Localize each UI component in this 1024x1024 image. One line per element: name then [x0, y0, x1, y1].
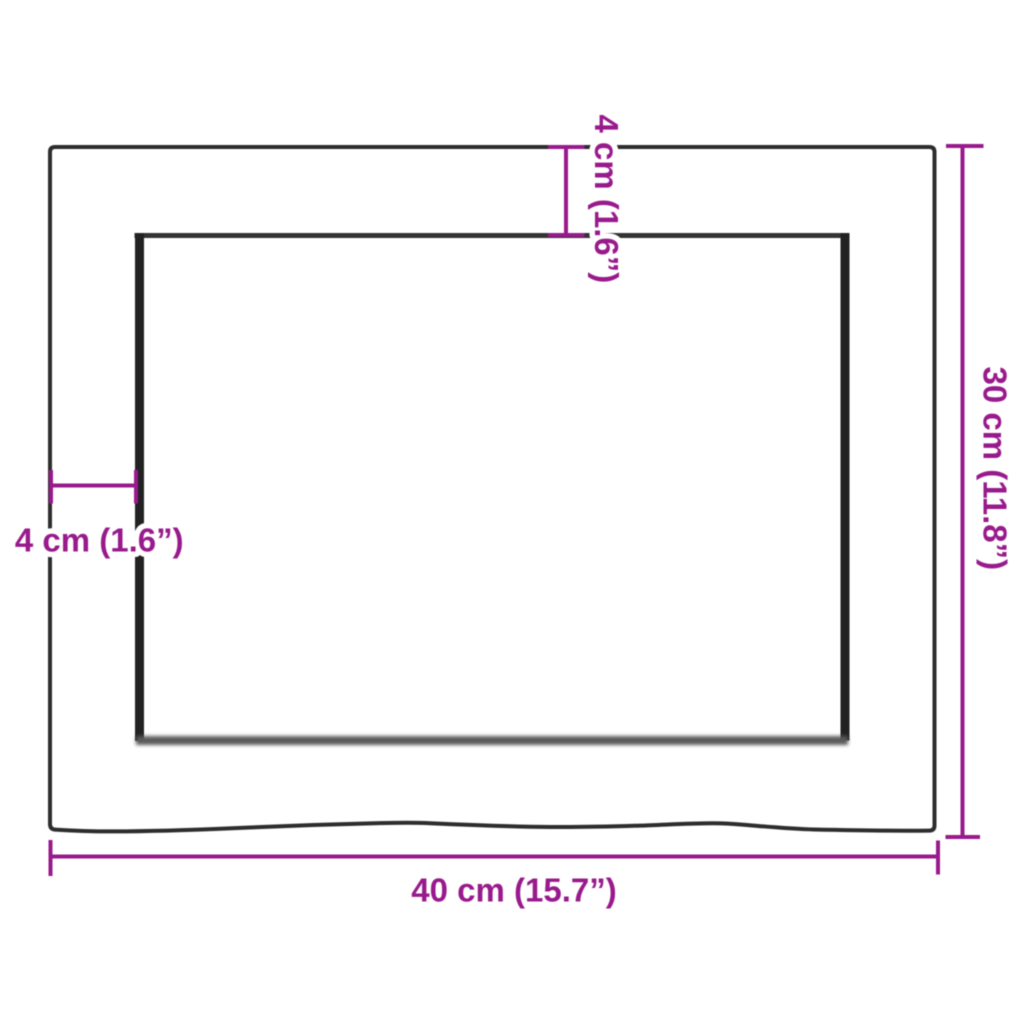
svg-text:30 cm (11.8”): 30 cm (11.8”) — [977, 367, 1014, 571]
svg-text:40 cm (15.7”): 40 cm (15.7”) — [411, 872, 616, 909]
svg-text:4 cm (1.6”): 4 cm (1.6”) — [15, 522, 184, 559]
svg-text:4 cm (1.6”): 4 cm (1.6”) — [588, 115, 625, 284]
